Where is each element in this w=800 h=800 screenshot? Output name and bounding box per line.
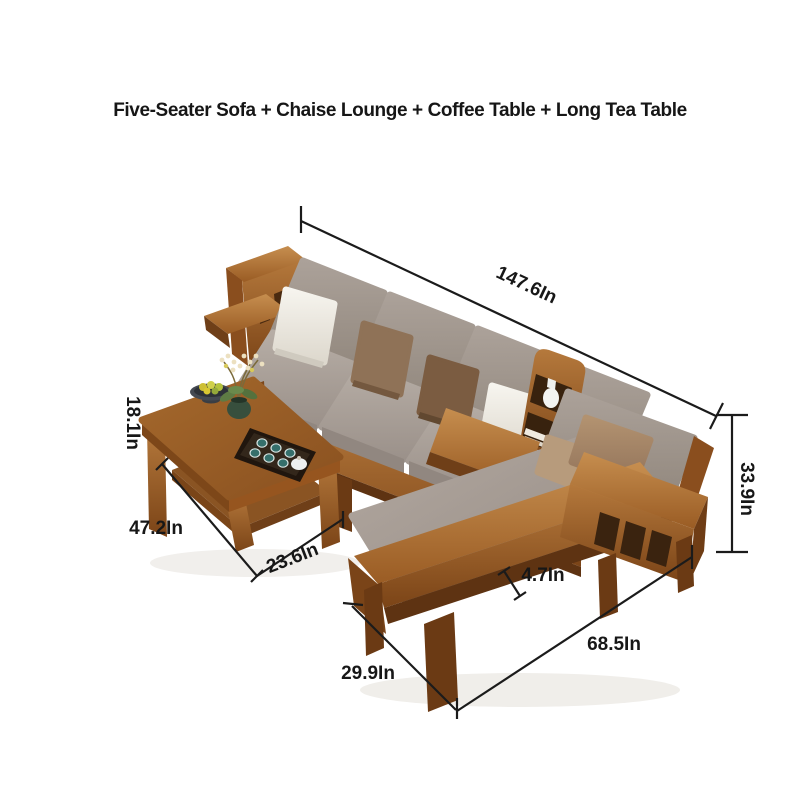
dim-label-table-height: 18.1In [122,396,143,450]
dim-label-sofa-length: 147.6In [493,262,560,308]
dim-label-chaise-length: 68.5In [587,634,641,655]
dim-label-sofa-height: 33.9In [736,462,757,516]
dim-label-rail-width: 4.7In [521,565,564,586]
product-dimensions-image: Five-Seater Sofa + Chaise Lounge + Coffe… [0,0,800,800]
dim-label-chaise-width: 29.9In [341,663,395,684]
dim-label-table-length: 47.2In [129,518,183,539]
furniture-illustration: 147.6In 33.9In 18.1In 47.2In 23.6In 4.7I… [0,0,800,800]
